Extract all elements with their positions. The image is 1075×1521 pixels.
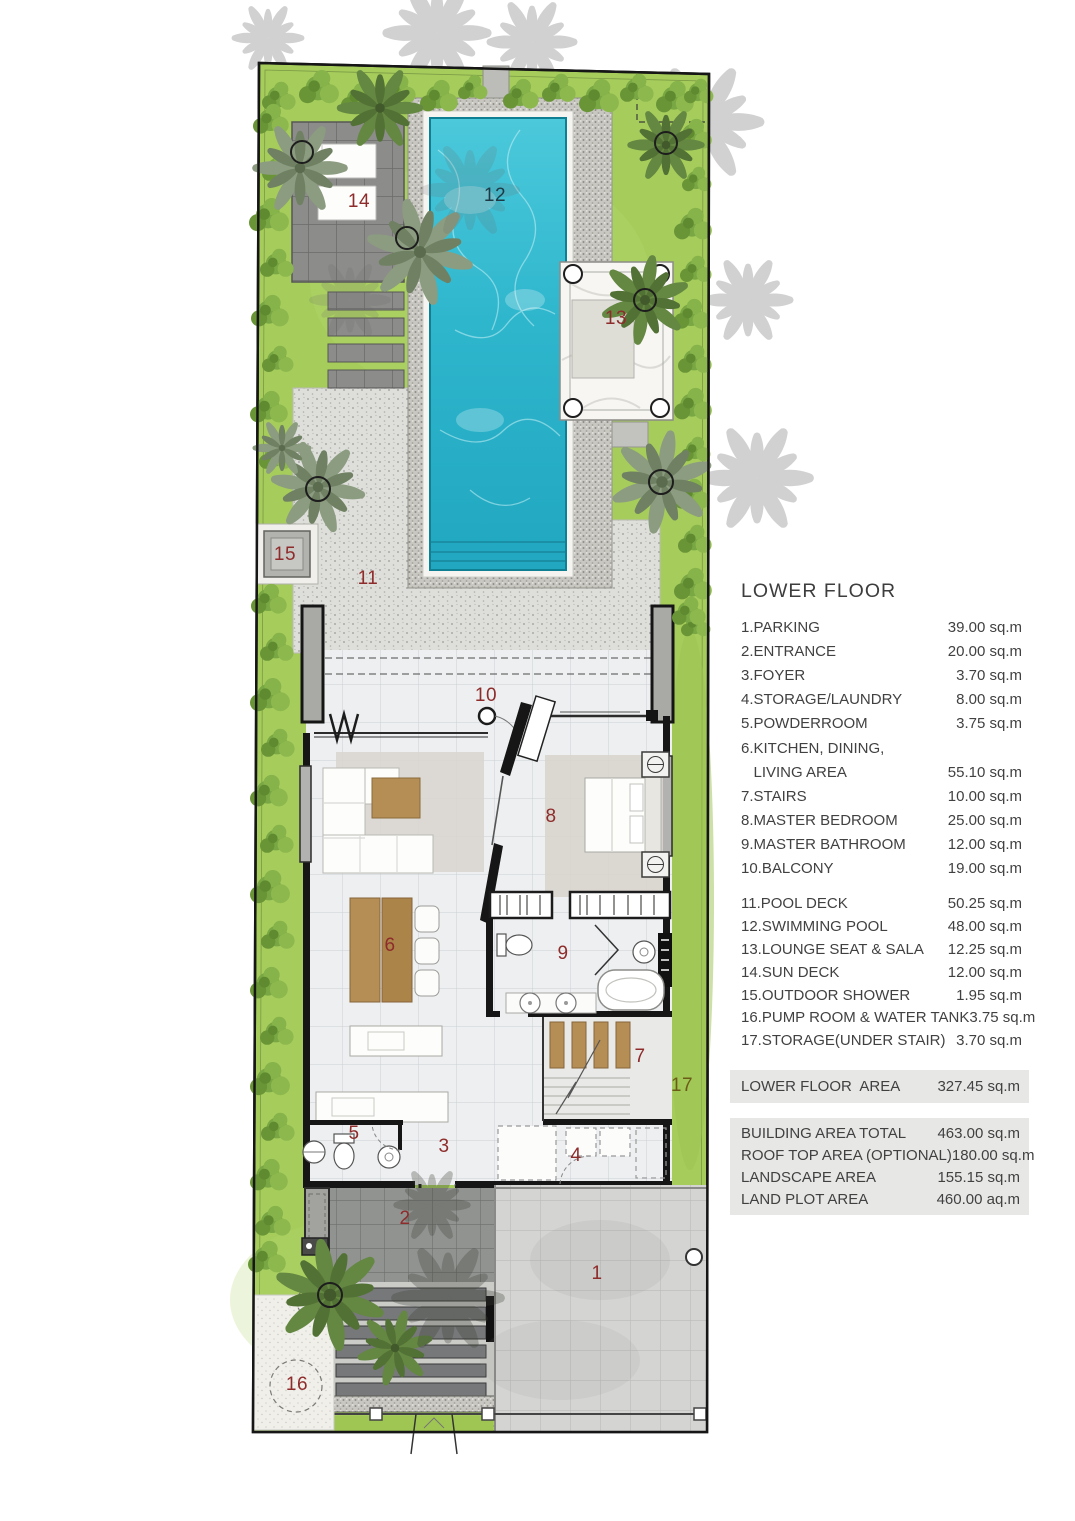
legend-row-value: 48.00 sq.m xyxy=(948,918,1022,935)
legend-row: 9.MASTER BATHROOM 12.00 sq.m xyxy=(741,833,1022,857)
room-number-label: 9 xyxy=(557,943,568,965)
legend-total-label: LOWER FLOOR AREA xyxy=(741,1078,900,1095)
legend-row: 11.POOL DECK 50.25 sq.m xyxy=(741,892,1022,915)
legend-rooms-1-10: 1.PARKING 39.00 sq.m 2.ENTRANCE 20.00 sq… xyxy=(741,615,1022,881)
summary-row-value: 463.00 sq.m xyxy=(937,1125,1020,1142)
legend-row-value: 8.00 sq.m xyxy=(956,691,1022,708)
parking xyxy=(480,1185,708,1432)
legend-rooms-11-17: 11.POOL DECK 50.25 sq.m 12.SWIMMING POOL… xyxy=(741,892,1022,1052)
summary-row-value: 155.15 sq.m xyxy=(937,1169,1020,1186)
legend-total-value: 327.45 sq.m xyxy=(937,1078,1020,1095)
legend-row-value: 3.75 sq.m xyxy=(956,715,1022,732)
legend-row-value: 1.95 sq.m xyxy=(956,987,1022,1004)
room-number-label: 16 xyxy=(286,1374,308,1396)
summary-row-value: 460.00 aq.m xyxy=(937,1191,1020,1208)
summary-row: ROOF TOP AREA (OPTIONAL) 180.00 sq.m xyxy=(741,1147,1020,1164)
legend-row-label: 12.SWIMMING POOL xyxy=(741,918,888,935)
legend-row-value: 39.00 sq.m xyxy=(948,619,1022,636)
legend-row-label: 11.POOL DECK xyxy=(741,895,848,912)
legend-row: 3.FOYER 3.70 sq.m xyxy=(741,663,1022,687)
room-number-label: 14 xyxy=(348,191,370,213)
legend-row-value: 3.70 sq.m xyxy=(956,667,1022,684)
room-number-label: 4 xyxy=(570,1145,581,1167)
legend-total-row: LOWER FLOOR AREA 327.45 sq.m xyxy=(741,1078,1020,1095)
legend-row: 17.STORAGE(UNDER STAIR) 3.70 sq.m xyxy=(741,1029,1022,1052)
room-number-label: 2 xyxy=(399,1208,410,1230)
summary-row-label: BUILDING AREA TOTAL xyxy=(741,1125,906,1142)
room-number-label: 15 xyxy=(274,544,296,566)
summary-row-label: LAND PLOT AREA xyxy=(741,1191,868,1208)
legend-row: 14.SUN DECK 12.00 sq.m xyxy=(741,961,1022,984)
legend-row-label: 8.MASTER BEDROOM xyxy=(741,812,898,829)
room-number-label: 8 xyxy=(545,806,556,828)
room-number-label: 5 xyxy=(348,1123,359,1145)
legend-row-label: 13.LOUNGE SEAT & SALA xyxy=(741,941,924,958)
area-summary-band: BUILDING AREA TOTAL 463.00 sq.m ROOF TOP… xyxy=(730,1118,1029,1215)
legend-row-label: 15.OUTDOOR SHOWER xyxy=(741,987,910,1004)
legend-row: 10.BALCONY 19.00 sq.m xyxy=(741,857,1022,881)
legend-row: 12.SWIMMING POOL 48.00 sq.m xyxy=(741,915,1022,938)
legend-row-value: 55.10 sq.m xyxy=(948,764,1022,781)
room-number-label: 3 xyxy=(438,1136,449,1158)
summary-row-label: LANDSCAPE AREA xyxy=(741,1169,876,1186)
summary-row-label: ROOF TOP AREA (OPTIONAL) xyxy=(741,1147,952,1164)
legend-row-label: 7.STAIRS xyxy=(741,788,807,805)
legend-row: 4.STORAGE/LAUNDRY 8.00 sq.m xyxy=(741,688,1022,712)
legend-row-label: 10.BALCONY xyxy=(741,860,834,877)
legend-row: 16.PUMP ROOM & WATER TANK 3.75 sq.m xyxy=(741,1006,1022,1029)
legend-row-label: 16.PUMP ROOM & WATER TANK xyxy=(741,1009,969,1026)
legend-row-label: 6.KITCHEN, DINING, xyxy=(741,740,884,757)
legend-row: 1.PARKING 39.00 sq.m xyxy=(741,615,1022,639)
legend-row-value: 3.75 sq.m xyxy=(969,1009,1035,1026)
summary-row: LANDSCAPE AREA 155.15 sq.m xyxy=(741,1169,1020,1186)
legend-row-label: 4.STORAGE/LAUNDRY xyxy=(741,691,902,708)
room-number-label: 1 xyxy=(591,1263,602,1285)
legend-row-label: 17.STORAGE(UNDER STAIR) xyxy=(741,1032,945,1049)
legend-row-label: 9.MASTER BATHROOM xyxy=(741,836,906,853)
legend-row-value: 25.00 sq.m xyxy=(948,812,1022,829)
legend-row: 2.ENTRANCE 20.00 sq.m xyxy=(741,639,1022,663)
legend-row-value: 12.00 sq.m xyxy=(948,836,1022,853)
legend-title: LOWER FLOOR xyxy=(741,580,896,603)
legend-row: 5.POWDERROOM 3.75 sq.m xyxy=(741,712,1022,736)
legend-row-value: 12.00 sq.m xyxy=(948,964,1022,981)
floor-plan-page: 1234567891011121314151617 LOWER FLOOR 1.… xyxy=(0,0,1075,1521)
legend-row-label: 5.POWDERROOM xyxy=(741,715,868,732)
room-number-label: 13 xyxy=(605,308,627,330)
legend-row: 15.OUTDOOR SHOWER 1.95 sq.m xyxy=(741,984,1022,1007)
legend-row-label: 14.SUN DECK xyxy=(741,964,839,981)
lower-floor-area-band: LOWER FLOOR AREA 327.45 sq.m xyxy=(730,1070,1029,1103)
room-number-label: 6 xyxy=(384,935,395,957)
legend-row-value: 19.00 sq.m xyxy=(948,860,1022,877)
legend-row: 13.LOUNGE SEAT & SALA 12.25 sq.m xyxy=(741,938,1022,961)
legend-row: LIVING AREA 55.10 sq.m xyxy=(741,760,1022,784)
legend-row-label: LIVING AREA xyxy=(741,764,847,781)
legend-row-value: 3.70 sq.m xyxy=(956,1032,1022,1049)
legend-row-label: 2.ENTRANCE xyxy=(741,643,836,660)
summary-row: LAND PLOT AREA 460.00 aq.m xyxy=(741,1191,1020,1208)
legend-row-value: 10.00 sq.m xyxy=(948,788,1022,805)
legend-row-label: 1.PARKING xyxy=(741,619,820,636)
room-number-label: 10 xyxy=(475,685,497,707)
legend-row: 7.STAIRS 10.00 sq.m xyxy=(741,784,1022,808)
room-number-label: 17 xyxy=(671,1075,693,1097)
legend-row-value: 12.25 sq.m xyxy=(948,941,1022,958)
room-number-label: 7 xyxy=(634,1046,645,1068)
legend-row: 6.KITCHEN, DINING, xyxy=(741,736,1022,760)
room-number-label: 11 xyxy=(358,568,379,590)
legend-row-value: 50.25 sq.m xyxy=(948,895,1022,912)
summary-row: BUILDING AREA TOTAL 463.00 sq.m xyxy=(741,1125,1020,1142)
legend-row-label: 3.FOYER xyxy=(741,667,805,684)
legend-row: 8.MASTER BEDROOM 25.00 sq.m xyxy=(741,809,1022,833)
summary-row-value: 180.00 sq.m xyxy=(952,1147,1035,1164)
legend-row-value: 20.00 sq.m xyxy=(948,643,1022,660)
room-number-label: 12 xyxy=(484,185,506,207)
